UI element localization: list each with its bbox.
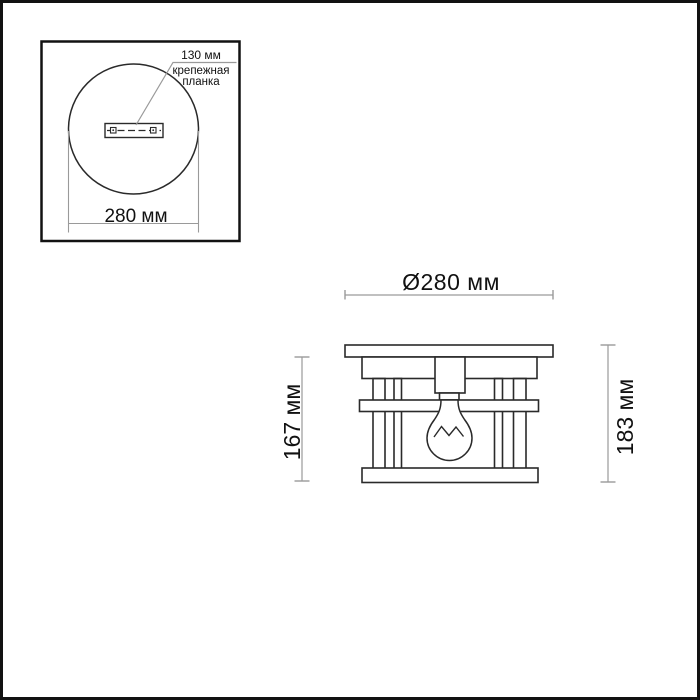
ceiling-plate xyxy=(345,345,553,357)
post-right-outer xyxy=(514,379,527,469)
front-overall-height-label: 183 мм xyxy=(612,357,636,477)
front-body-height-label: 167 мм xyxy=(279,362,303,482)
post-left-outer xyxy=(373,379,385,469)
front-diameter-label: Ø280 мм xyxy=(351,269,551,296)
spec-sheet: 130 мм крепежная планка 280 мм Ø280 мм 1… xyxy=(0,0,700,700)
mounting-hole-right-dot xyxy=(152,129,154,131)
mount-plate-size-label: 130 мм xyxy=(159,49,243,62)
mounting-plate xyxy=(105,124,163,138)
mounting-hole-left-dot xyxy=(112,129,114,131)
lamp-stem xyxy=(435,357,465,393)
lamp-socket xyxy=(440,393,460,400)
post-right-inner xyxy=(495,379,503,469)
front-view xyxy=(345,345,553,483)
mount-plate-name-line2: планка xyxy=(159,77,243,88)
drawing-canvas xyxy=(3,3,697,697)
post-left-inner xyxy=(394,379,402,469)
bottom-band xyxy=(362,468,538,483)
inset-diameter-label: 280 мм xyxy=(86,206,186,228)
